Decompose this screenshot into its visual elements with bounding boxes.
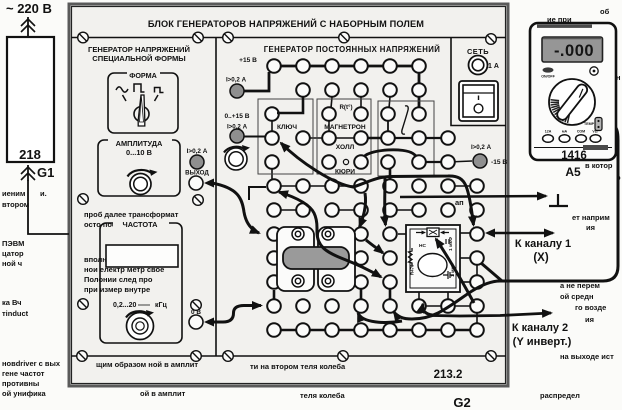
- svg-text:ой средн: ой средн: [560, 292, 594, 301]
- svg-text:(X): (X): [533, 252, 549, 264]
- svg-text:213.2: 213.2: [434, 369, 463, 381]
- svg-text:VΩ: VΩ: [592, 130, 597, 134]
- svg-text:КЛЮЧ: КЛЮЧ: [277, 124, 297, 131]
- svg-text:НС: НС: [419, 243, 426, 249]
- svg-text:щим образом ной в амплит: щим образом ной в амплит: [96, 360, 198, 369]
- svg-text:в котор: в котор: [585, 161, 613, 170]
- svg-text:ка Вч: ка Вч: [2, 298, 22, 307]
- svg-text:1 А: 1 А: [488, 63, 499, 70]
- svg-text:I>0,2 А: I>0,2 А: [226, 77, 247, 84]
- svg-text:ХОЛЛ: ХОЛЛ: [336, 144, 355, 151]
- svg-text:гене частот: гене частот: [2, 369, 45, 378]
- svg-text:G2: G2: [453, 395, 470, 410]
- svg-text:ти на втором теля колеба: ти на втором теля колеба: [250, 362, 346, 371]
- svg-text:мА: мА: [562, 130, 568, 134]
- svg-text:-.000: -.000: [554, 42, 594, 60]
- svg-text:ой в амплит: ой в амплит: [140, 389, 186, 398]
- svg-text:теля колеба: теля колеба: [300, 391, 345, 400]
- svg-text:ет наприм: ет наприм: [572, 213, 610, 222]
- svg-text:и.: и.: [40, 189, 47, 198]
- svg-text:го возде: го возде: [575, 303, 606, 312]
- svg-text:R470: R470: [410, 264, 415, 275]
- svg-text:-15 В: -15 В: [491, 159, 507, 166]
- svg-text:К каналу 1: К каналу 1: [515, 238, 571, 250]
- svg-text:проб далее трансформат: проб далее трансформат: [84, 210, 179, 219]
- svg-text:TEMP: TEMP: [584, 122, 595, 126]
- svg-text:А5: А5: [565, 165, 581, 179]
- svg-text:втором: втором: [2, 200, 30, 209]
- svg-text:ой унифика: ой унифика: [2, 389, 47, 398]
- svg-text:0...10 В: 0...10 В: [126, 148, 152, 157]
- svg-text:0,2...20: 0,2...20: [113, 302, 136, 309]
- svg-text:иеним: иеним: [2, 189, 26, 198]
- svg-text:ГЕНЕРАТОР НАПРЯЖЕНИЙ: ГЕНЕРАТОР НАПРЯЖЕНИЙ: [88, 45, 190, 54]
- svg-text:0..+15 В: 0..+15 В: [224, 113, 249, 120]
- svg-text:ия: ия: [586, 223, 595, 232]
- svg-text:АМПЛИТУДА: АМПЛИТУДА: [116, 139, 163, 148]
- svg-text:ГЕНЕРАТОР ПОСТОЯННЫХ НАПРЯЖЕ: ГЕНЕРАТОР ПОСТОЯННЫХ НАПРЯЖЕНИЙ: [264, 45, 441, 54]
- svg-text:об: об: [600, 7, 610, 16]
- svg-text:при измер внутре: при измер внутре: [84, 285, 150, 294]
- svg-text:МАГНЕТРОН: МАГНЕТРОН: [324, 124, 366, 131]
- svg-text:+15 В: +15 В: [239, 57, 257, 64]
- svg-text:R(t°): R(t°): [339, 104, 352, 111]
- svg-text:на выходе ист: на выходе ист: [560, 352, 614, 361]
- svg-text:ПЭВМ: ПЭВМ: [2, 239, 24, 248]
- svg-text:цатор: цатор: [2, 249, 24, 258]
- svg-text:ФОРМА: ФОРМА: [129, 71, 157, 80]
- svg-text:новdriver с вых: новdriver с вых: [2, 359, 61, 368]
- svg-text:К каналу 2: К каналу 2: [512, 322, 568, 334]
- svg-text:тinduct: тinduct: [2, 309, 29, 318]
- svg-text:I>0,2 А: I>0,2 А: [187, 148, 208, 155]
- svg-text:СПЕЦИАЛЬНОЙ ФОРМЫ: СПЕЦИАЛЬНОЙ ФОРМЫ: [92, 54, 185, 63]
- svg-text:I>0,2 А: I>0,2 А: [471, 144, 492, 151]
- svg-text:ON/OFF: ON/OFF: [541, 75, 555, 79]
- svg-text:218: 218: [19, 147, 41, 162]
- svg-text:распредел: распредел: [540, 391, 580, 400]
- svg-text:ной ч: ной ч: [2, 259, 22, 268]
- svg-text:1416: 1416: [561, 150, 587, 162]
- svg-text:СОМ: СОМ: [577, 130, 585, 134]
- svg-text:ап: ап: [455, 198, 464, 207]
- svg-text:(Y инверт.): (Y инверт.): [513, 336, 572, 348]
- svg-text:кГц: кГц: [155, 302, 167, 309]
- svg-text:БЛОК ГЕНЕРАТОРОВ НАПРЯЖЕНИЙ: БЛОК ГЕНЕРАТОРОВ НАПРЯЖЕНИЙ С НАБОРНЫМ П…: [148, 18, 424, 29]
- svg-text:12А: 12А: [545, 130, 552, 134]
- svg-text:Полонии след про: Полонии след про: [84, 275, 153, 284]
- svg-text:~ 220 В: ~ 220 В: [6, 1, 52, 16]
- svg-text:противны: противны: [2, 379, 39, 388]
- svg-text:G1: G1: [37, 165, 54, 180]
- svg-text:КЮРИ: КЮРИ: [335, 169, 355, 176]
- svg-text:ЧАСТОТА: ЧАСТОТА: [123, 220, 159, 229]
- svg-text:ия: ия: [585, 315, 594, 324]
